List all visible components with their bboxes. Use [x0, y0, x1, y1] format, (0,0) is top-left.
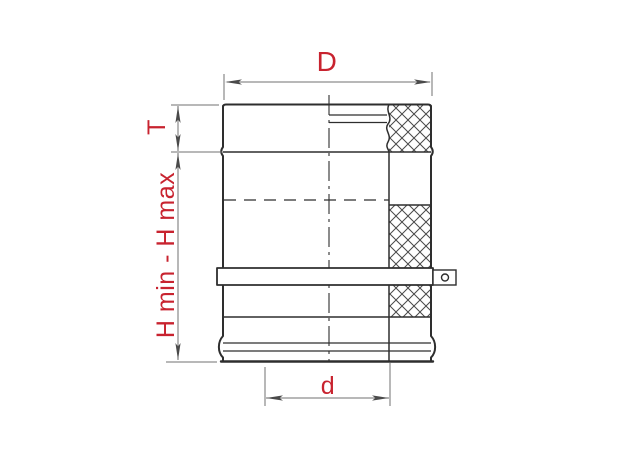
dimension-D: D: [224, 46, 432, 100]
technical-drawing-canvas: D T H min - H max d: [0, 0, 624, 460]
dim-D-label: D: [317, 46, 338, 77]
dim-H-label: H min - H max: [152, 172, 180, 338]
dimension-T: T: [143, 105, 222, 152]
pipe-left-edge: [219, 106, 223, 361]
band-clamp: [217, 268, 456, 285]
dimension-H: H min - H max: [152, 153, 217, 362]
pipe-body: [219, 95, 435, 362]
pipe-right-edge: [431, 106, 435, 361]
band-tab-hole: [442, 274, 449, 281]
insulation-hatch-lower: [389, 285, 431, 317]
insulation-hatch-middle: [389, 205, 431, 268]
dimension-d: d: [265, 363, 390, 406]
insulation-hatch-upper: [389, 104, 431, 152]
locking-band: [217, 268, 433, 285]
dim-T-label: T: [143, 119, 171, 135]
dim-d-label: d: [321, 372, 335, 400]
flue-pipe-technical-drawing: D T H min - H max d: [0, 0, 624, 460]
